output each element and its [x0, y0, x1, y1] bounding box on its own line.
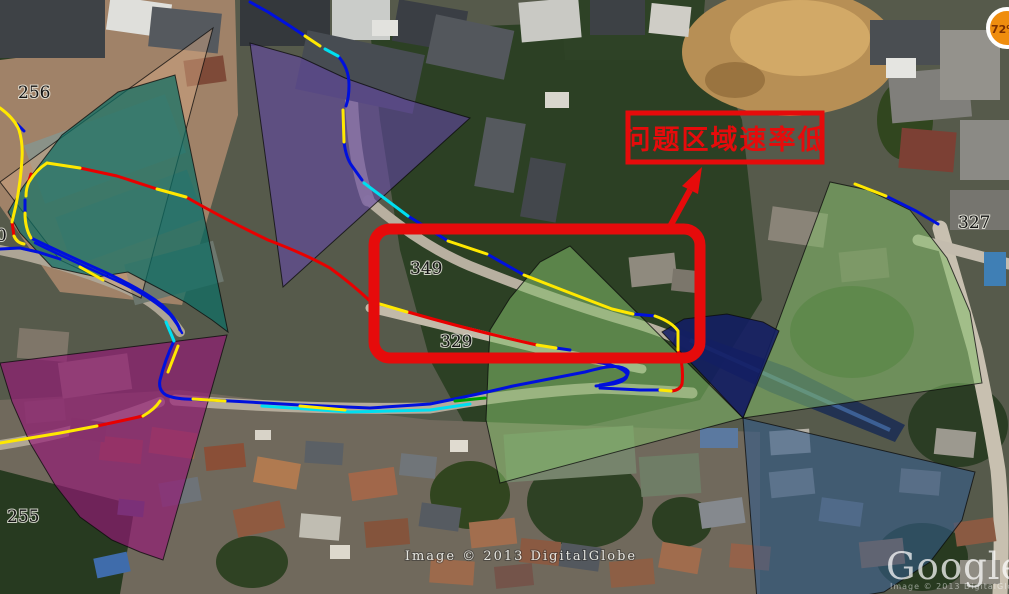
satellite-map-viewport[interactable]: 256 0 255 349 329 327 问题区域速率低 Image © 20…: [0, 0, 1009, 594]
imagery-credit: Image © 2013 DigitalGlobe: [405, 549, 637, 564]
cell-label-255: 255: [7, 507, 39, 527]
google-logo-credit: Image © 2013 DigitalGlobe: [890, 582, 1009, 591]
cell-label-0: 0: [0, 226, 7, 246]
site-badge-value: 72%: [991, 23, 1009, 36]
cell-label-349: 349: [410, 259, 442, 279]
cell-label-327: 327: [958, 213, 990, 233]
site-badge[interactable]: 72%: [988, 9, 1009, 47]
cell-label-256: 256: [18, 83, 50, 103]
cell-label-329: 329: [440, 332, 472, 352]
annotation-label: 问题区域速率低: [624, 124, 827, 155]
map-canvas: 256 0 255 349 329 327 问题区域速率低 Image © 20…: [0, 0, 1009, 594]
